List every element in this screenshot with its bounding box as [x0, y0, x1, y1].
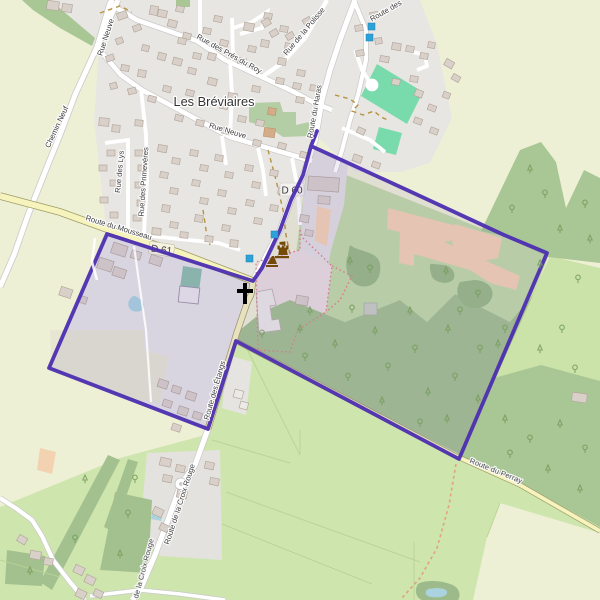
svg-text:Les Bréviaires: Les Bréviaires [173, 94, 254, 109]
